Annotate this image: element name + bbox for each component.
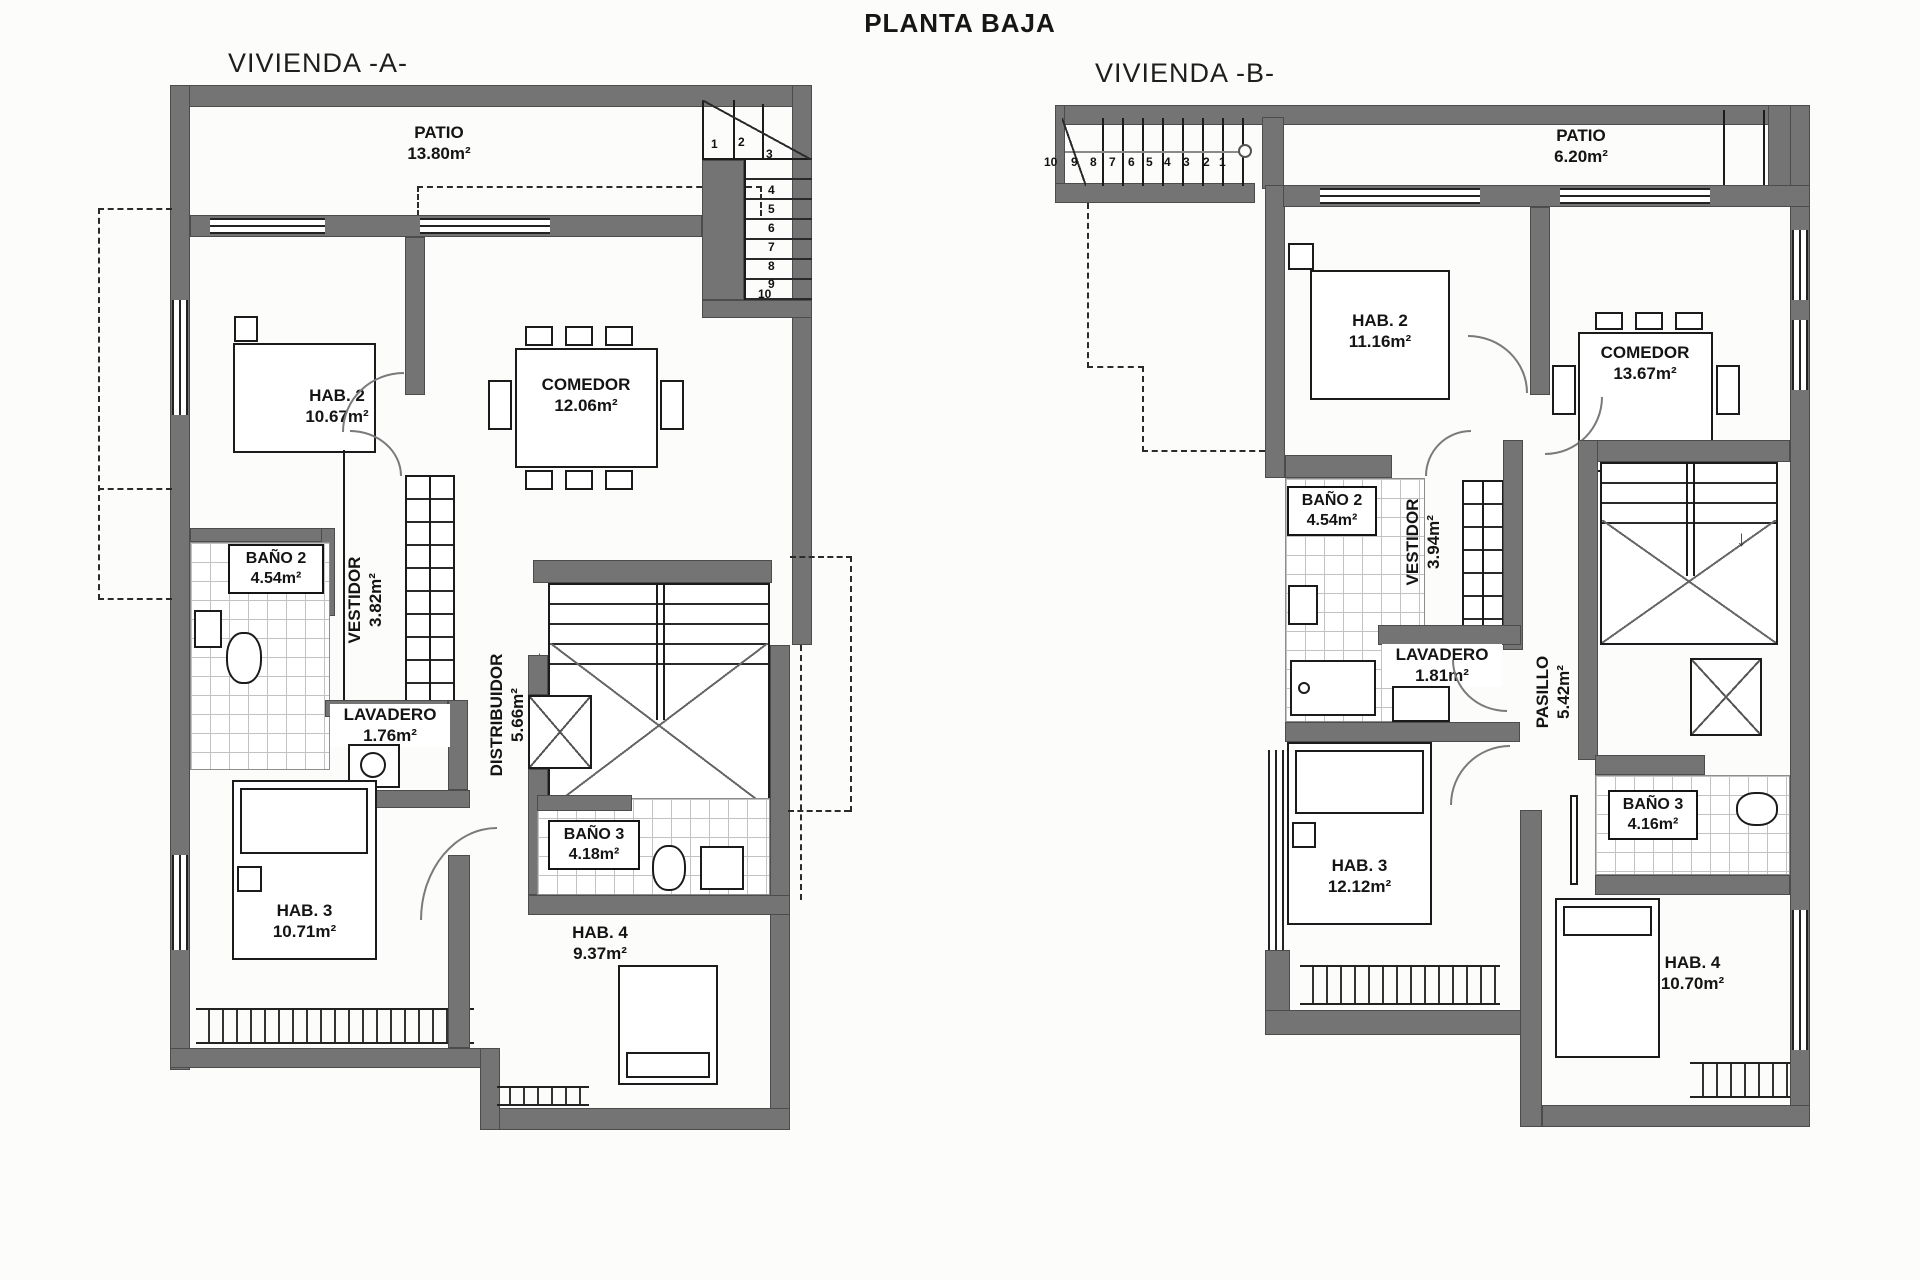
shower (1690, 658, 1762, 736)
radiator (1690, 1062, 1790, 1098)
wall (170, 1048, 500, 1068)
wall (537, 795, 632, 811)
room-label-hab4-b: HAB. 4 10.70m² (1635, 952, 1750, 995)
stair-diagonal (702, 100, 812, 160)
room-name: HAB. 3 (247, 900, 362, 921)
room-name: VESTIDOR (1402, 467, 1423, 617)
door-leaf (1570, 795, 1578, 885)
window (1792, 320, 1808, 390)
stairwell (1600, 462, 1778, 645)
room-label-hab3-a: HAB. 3 10.71m² (247, 900, 362, 943)
bedside-table (237, 866, 262, 892)
projection-dashed-line (98, 208, 100, 600)
shower (528, 695, 592, 769)
wall (1055, 183, 1255, 203)
wardrobe (1462, 480, 1504, 633)
room-area: 4.54m² (232, 569, 320, 589)
stair-step-number: 1 (711, 138, 718, 150)
pillow (240, 788, 368, 854)
wardrobe (405, 475, 455, 715)
window (1792, 910, 1808, 1050)
window (420, 218, 550, 234)
chair (525, 470, 553, 490)
washing-machine (1392, 686, 1450, 722)
washer-drum (360, 752, 386, 778)
plan-b-title: VIVIENDA -B- (1095, 58, 1275, 89)
room-label-patio-b: PATIO 6.20m² (1531, 125, 1631, 168)
room-label-pasillo-b: PASILLO 5.42m² (1532, 622, 1576, 762)
wall (528, 895, 790, 915)
projection-dashed-line (1142, 450, 1265, 452)
window (210, 218, 325, 234)
stair-newel (1238, 144, 1252, 158)
wall (702, 160, 744, 300)
wall (702, 300, 812, 318)
room-area: 5.66m² (507, 630, 528, 800)
projection-dashed-line (1087, 203, 1089, 368)
bathtub-drain (1298, 682, 1310, 694)
wall (1578, 440, 1598, 760)
room-area: 3.82m² (365, 525, 386, 675)
room-area: 4.16m² (1612, 815, 1694, 835)
pillow (626, 1052, 710, 1078)
stair-step-number: 10 (1044, 156, 1057, 168)
door-arc (1452, 660, 1507, 712)
room-area: 5.42m² (1553, 622, 1574, 762)
room-area: 13.67m² (1585, 363, 1705, 384)
window (1792, 230, 1808, 300)
wardrobe-rail (1482, 482, 1484, 631)
wall (533, 560, 772, 583)
stair-step-number: 2 (738, 136, 745, 148)
room-name: LAVADERO (330, 704, 450, 725)
window (1268, 750, 1284, 950)
stair-step-number: 6 (768, 222, 775, 234)
bedside-table (234, 316, 258, 342)
window (1320, 188, 1480, 204)
room-label-bano2-b: BAÑO 2 4.54m² (1287, 486, 1377, 536)
page-title: PLANTA BAJA (820, 8, 1100, 39)
projection-dashed-line (850, 556, 852, 812)
wall (1285, 722, 1520, 742)
chair (605, 326, 633, 346)
toilet (1736, 792, 1778, 826)
overhang-dashed-line (417, 186, 419, 216)
room-label-vestidor-a: VESTIDOR 3.82m² (344, 525, 388, 675)
wall (190, 528, 335, 542)
room-label-bano3-b: BAÑO 3 4.16m² (1608, 790, 1698, 840)
room-name: PATIO (1531, 125, 1631, 146)
door-arc (1468, 335, 1528, 393)
room-label-comedor-b: COMEDOR 13.67m² (1585, 342, 1705, 385)
door-arc (1450, 745, 1510, 805)
wall (405, 237, 425, 395)
room-name: VESTIDOR (344, 525, 365, 675)
wall (448, 700, 468, 790)
pillow (1295, 750, 1424, 814)
room-area: 12.12m² (1302, 876, 1417, 897)
wall (1595, 440, 1790, 462)
wall (770, 645, 790, 1130)
room-area: 4.18m² (552, 845, 636, 865)
room-name: PASILLO (1532, 622, 1553, 762)
chair (525, 326, 553, 346)
stair-step-number: 4 (768, 184, 775, 196)
room-label-patio-a: PATIO 13.80m² (389, 122, 489, 165)
room-label-bano2-a: BAÑO 2 4.54m² (228, 544, 324, 594)
wall (1378, 625, 1521, 645)
stair-step-number: 7 (768, 241, 775, 253)
window (172, 300, 188, 415)
wardrobe-rail (429, 477, 431, 713)
room-name: PATIO (389, 122, 489, 143)
toilet (652, 845, 686, 891)
radiator (196, 1008, 474, 1044)
room-label-bano3-a: BAÑO 3 4.18m² (548, 820, 640, 870)
projection-dashed-line (790, 556, 852, 558)
room-area: 12.06m² (526, 395, 646, 416)
stairwell-cross (1602, 520, 1776, 643)
room-name: BAÑO 2 (1291, 491, 1373, 511)
radiator (1300, 965, 1500, 1005)
room-name: DISTRIBUIDOR (486, 630, 507, 800)
stair-step-number: 4 (1164, 156, 1171, 168)
wall (1530, 207, 1550, 395)
chair (660, 380, 684, 430)
room-name: HAB. 2 (1330, 310, 1430, 331)
pillow (1563, 906, 1652, 936)
room-label-vestidor-b: VESTIDOR 3.94m² (1402, 467, 1446, 617)
room-area: 10.70m² (1635, 973, 1750, 994)
stair-step-number: 5 (1146, 156, 1153, 168)
projection-dashed-line (788, 810, 850, 812)
room-label-hab2-b: HAB. 2 11.16m² (1330, 310, 1430, 353)
chair (565, 326, 593, 346)
patio-door-line (1763, 110, 1765, 188)
wall (528, 655, 548, 695)
wall (1262, 117, 1284, 189)
stair-step-number: 5 (768, 203, 775, 215)
stair-step-number: 8 (1090, 156, 1097, 168)
bedside-table (1292, 822, 1316, 848)
room-name: COMEDOR (1585, 342, 1705, 363)
room-area: 3.94m² (1423, 467, 1444, 617)
stair-step-number: 1 (1219, 156, 1226, 168)
projection-dashed-line (800, 645, 802, 900)
stair-step-number: 2 (1203, 156, 1210, 168)
wall (1285, 455, 1392, 478)
chair (565, 470, 593, 490)
stair-treads (744, 160, 812, 300)
door-arc (420, 827, 497, 920)
sink (1288, 585, 1318, 625)
radiator (497, 1086, 589, 1106)
stair-step-number: 9 (1071, 156, 1078, 168)
room-name: HAB. 4 (545, 922, 655, 943)
room-label-distribuidor-a: DISTRIBUIDOR 5.66m² (486, 630, 530, 800)
projection-dashed-line (98, 488, 172, 490)
wall (1503, 440, 1523, 650)
toilet (226, 632, 262, 684)
stair-step-number: 3 (1183, 156, 1190, 168)
wall (1595, 875, 1790, 895)
chair (1716, 365, 1740, 415)
chair (1675, 312, 1703, 330)
chair (488, 380, 512, 430)
plan-a-title: VIVIENDA -A- (228, 48, 408, 79)
room-area: 9.37m² (545, 943, 655, 964)
stair-diagonal (1062, 118, 1086, 186)
room-name: HAB. 4 (1635, 952, 1750, 973)
projection-dashed-line (98, 208, 172, 210)
wall (1265, 950, 1290, 1012)
room-area: 6.20m² (1531, 146, 1631, 167)
room-name: BAÑO 2 (232, 549, 320, 569)
room-label-comedor-a: COMEDOR 12.06m² (526, 374, 646, 417)
stair-step-number: 7 (1109, 156, 1116, 168)
projection-dashed-line (1142, 366, 1144, 452)
stair-step-number: 10 (758, 288, 771, 300)
wall (1520, 810, 1542, 1127)
bedside-table (1288, 243, 1314, 270)
wall (1265, 1010, 1542, 1035)
room-name: BAÑO 3 (1612, 795, 1694, 815)
room-label-hab4-a: HAB. 4 9.37m² (545, 922, 655, 965)
wall (1542, 1105, 1810, 1127)
wall (1265, 185, 1285, 478)
patio-door-line (1723, 110, 1725, 188)
room-area: 4.54m² (1291, 511, 1373, 531)
chair (1635, 312, 1663, 330)
stair-step-number: 8 (768, 260, 775, 272)
door-arc (350, 430, 402, 476)
sink (194, 610, 222, 648)
down-arrow: ↓ (1736, 528, 1747, 550)
window (1560, 188, 1710, 204)
room-name: BAÑO 3 (552, 825, 636, 845)
room-name: HAB. 3 (1302, 855, 1417, 876)
sink (700, 846, 744, 890)
stair-step-number: 3 (766, 148, 773, 160)
room-label-lavadero-a: LAVADERO 1.76m² (330, 704, 450, 747)
room-area: 13.80m² (389, 143, 489, 164)
room-area: 10.71m² (247, 921, 362, 942)
room-label-hab3-b: HAB. 3 12.12m² (1302, 855, 1417, 898)
stair-rail (1065, 151, 1243, 153)
wall (480, 1108, 790, 1130)
stair-step-number: 6 (1128, 156, 1135, 168)
window (172, 855, 188, 950)
projection-dashed-line (98, 598, 172, 600)
wall (1595, 755, 1705, 775)
room-name: COMEDOR (526, 374, 646, 395)
floorplan-canvas: PLANTA BAJA VIVIENDA -A- VIVIENDA -B- PA… (0, 0, 1920, 1280)
door-arc (1425, 430, 1471, 476)
projection-dashed-line (1087, 366, 1144, 368)
chair (605, 470, 633, 490)
room-area: 11.16m² (1330, 331, 1430, 352)
chair (1595, 312, 1623, 330)
